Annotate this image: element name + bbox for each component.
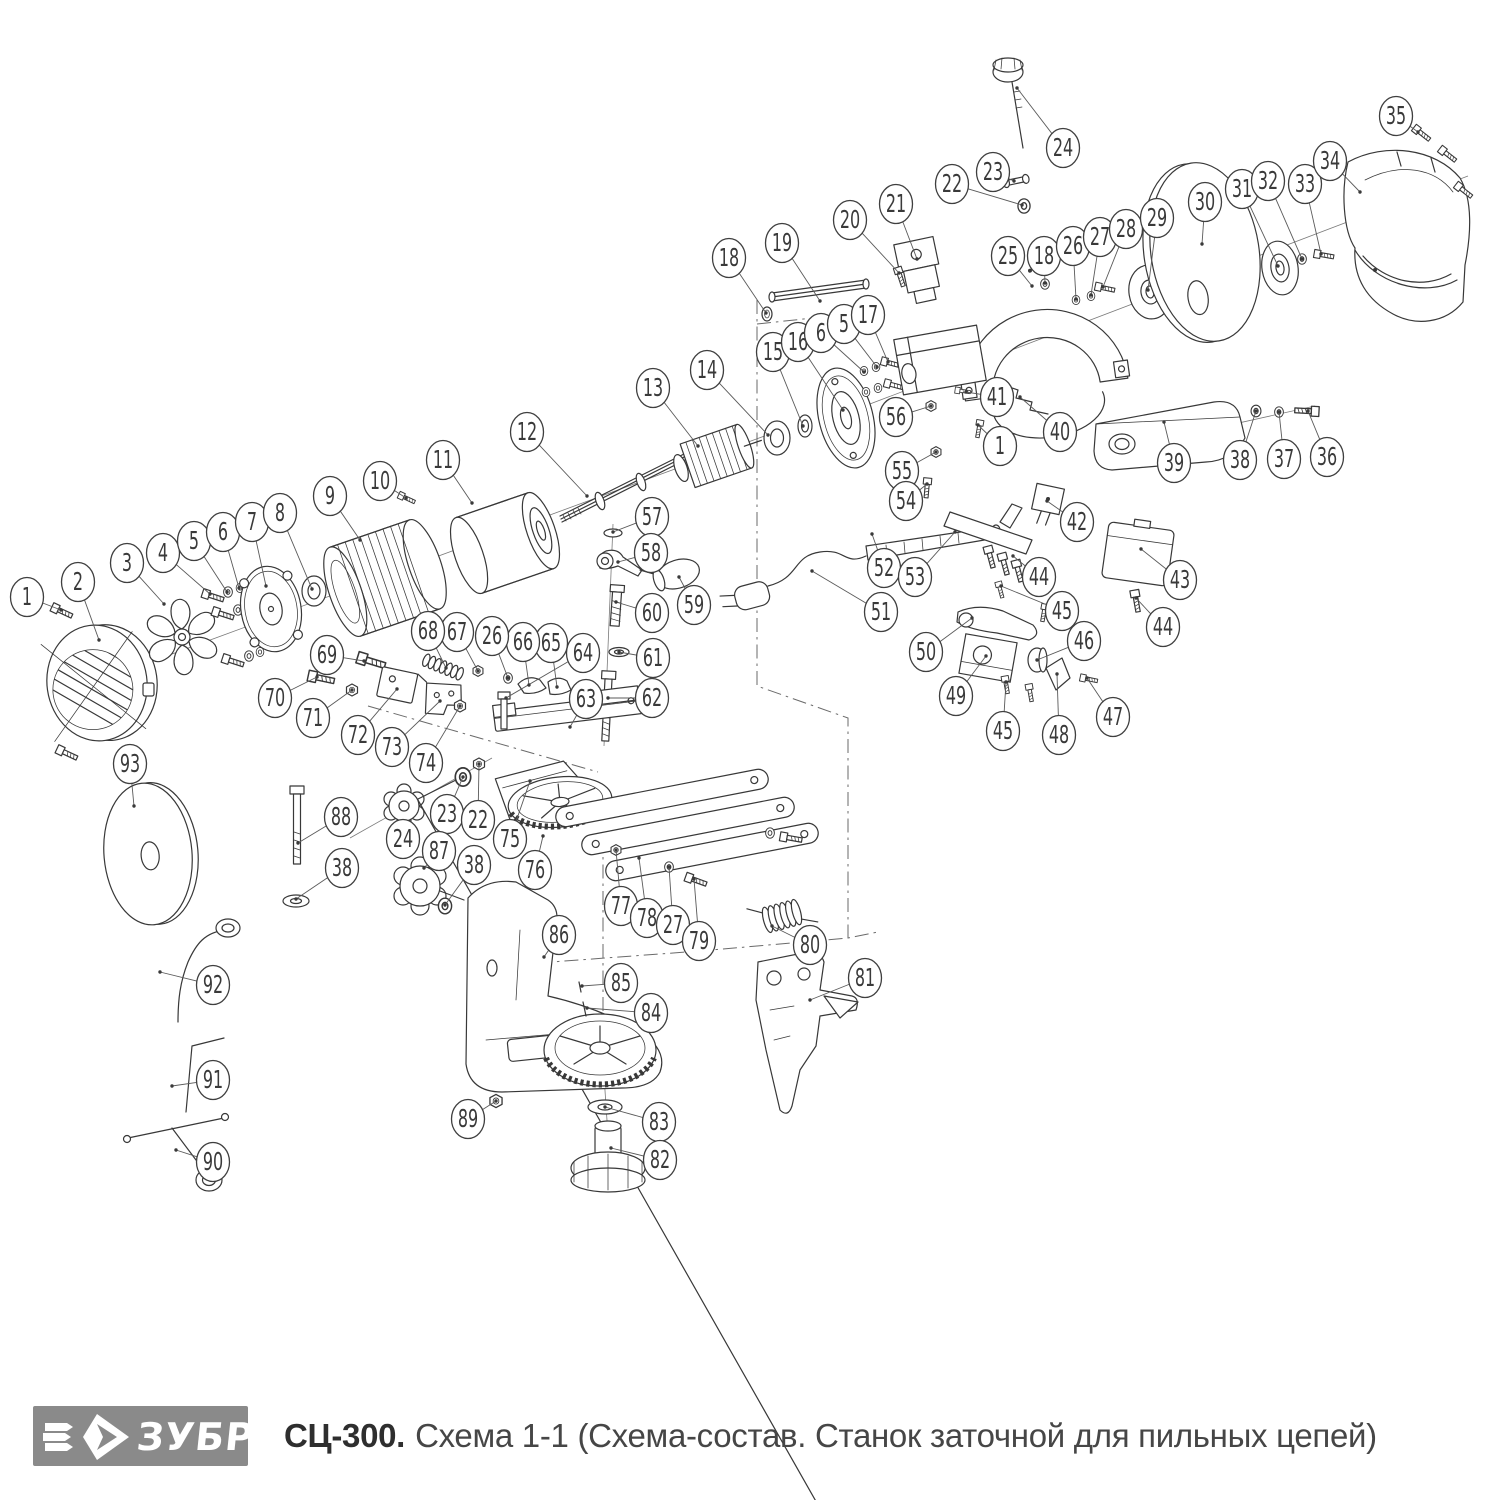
balloon-19: 19 (766, 224, 822, 303)
svg-text:69: 69 (317, 640, 337, 669)
svg-text:44: 44 (1153, 612, 1173, 641)
svg-text:19: 19 (772, 228, 792, 257)
svg-text:65: 65 (541, 628, 561, 657)
svg-text:50: 50 (916, 637, 936, 666)
svg-text:93: 93 (120, 749, 140, 778)
balloon-1: 1 (976, 423, 1016, 465)
svg-text:26: 26 (482, 621, 502, 650)
balloon-9: 9 (314, 477, 362, 542)
part-motor-flange (807, 362, 884, 474)
part-fan (144, 599, 220, 674)
svg-text:56: 56 (886, 402, 906, 431)
part-end-shield (234, 561, 308, 656)
balloon-69: 69 (311, 636, 366, 675)
balloon-87: 87 (422, 832, 455, 871)
svg-text:24: 24 (1053, 133, 1073, 162)
balloon-25: 25 (992, 237, 1034, 288)
part-bearing-front (302, 576, 326, 606)
balloon-92: 92 (158, 966, 229, 1005)
svg-text:67: 67 (447, 617, 467, 646)
part-spring-68 (421, 653, 465, 681)
svg-text:76: 76 (525, 855, 545, 884)
part-fan-cover (39, 617, 165, 748)
schema-title: Схема 1-1 (Схема-состав. Станок заточной… (415, 1417, 1377, 1454)
balloon-38: 38 (294, 849, 358, 901)
balloon-61: 61 (617, 639, 669, 678)
balloon-23: 23 (977, 153, 1016, 192)
balloon-60: 60 (614, 594, 668, 633)
svg-text:87: 87 (429, 836, 449, 865)
svg-text:51: 51 (871, 597, 891, 626)
svg-text:83: 83 (649, 1107, 669, 1136)
svg-text:6: 6 (218, 517, 228, 546)
part-stop-bracket-73 (421, 679, 464, 719)
svg-text:60: 60 (642, 598, 662, 627)
balloon-17: 17 (852, 296, 890, 364)
balloon-90: 90 (174, 1143, 229, 1182)
part-clip-65 (548, 678, 571, 694)
svg-text:18: 18 (1034, 241, 1054, 270)
part-power-cord (719, 551, 866, 615)
svg-text:29: 29 (1147, 203, 1167, 232)
svg-text:75: 75 (500, 824, 520, 853)
svg-text:10: 10 (370, 466, 390, 495)
exploded-diagram: 1234567891011121314151665171819202122232… (0, 0, 1500, 1500)
balloon-14: 14 (691, 351, 770, 437)
svg-text:26: 26 (1063, 231, 1083, 260)
svg-text:6: 6 (816, 318, 826, 347)
svg-text:39: 39 (1164, 448, 1184, 477)
svg-text:12: 12 (517, 417, 537, 446)
svg-text:68: 68 (418, 616, 438, 645)
svg-text:38: 38 (464, 850, 484, 879)
svg-text:86: 86 (549, 920, 569, 949)
svg-text:64: 64 (573, 638, 593, 667)
svg-text:23: 23 (983, 157, 1003, 186)
svg-text:80: 80 (800, 930, 820, 959)
svg-text:73: 73 (382, 732, 402, 761)
part-clip-66 (518, 678, 546, 694)
balloon-59: 59 (677, 575, 710, 624)
svg-text:27: 27 (1090, 222, 1110, 251)
svg-text:8: 8 (275, 498, 285, 527)
part-bracket-49 (959, 634, 1017, 682)
svg-text:5: 5 (839, 309, 849, 338)
part-washer-38-left (283, 895, 309, 907)
svg-text:2: 2 (73, 567, 83, 596)
balloon-10: 10 (364, 462, 408, 501)
svg-text:66: 66 (513, 627, 533, 656)
balloon-86: 86 (542, 916, 575, 959)
svg-text:20: 20 (840, 205, 860, 234)
svg-text:74: 74 (416, 748, 436, 777)
svg-text:45: 45 (1052, 596, 1072, 625)
svg-text:28: 28 (1116, 214, 1136, 243)
svg-text:38: 38 (332, 853, 352, 882)
svg-text:81: 81 (855, 963, 875, 992)
footer: ЗУБР СЦ-300.Схема 1-1 (Схема-состав. Ста… (0, 1400, 1500, 1472)
balloon-52: 52 (868, 532, 901, 587)
svg-text:49: 49 (946, 681, 966, 710)
part-spare-disc (98, 779, 204, 929)
page: 1234567891011121314151665171819202122232… (0, 0, 1500, 1500)
svg-text:52: 52 (874, 553, 894, 582)
svg-text:78: 78 (637, 903, 657, 932)
balloon-44: 44 (1134, 596, 1179, 646)
svg-text:1: 1 (995, 431, 1005, 460)
svg-text:55: 55 (892, 456, 912, 485)
svg-text:13: 13 (643, 373, 663, 402)
svg-text:35: 35 (1386, 101, 1406, 130)
part-latch-81 (756, 952, 858, 1113)
svg-text:14: 14 (697, 355, 717, 384)
svg-text:21: 21 (886, 189, 906, 218)
svg-text:45: 45 (993, 716, 1013, 745)
balloon-47: 47 (1085, 676, 1129, 736)
svg-text:22: 22 (468, 805, 488, 834)
svg-text:15: 15 (763, 337, 783, 366)
part-rotor (443, 488, 567, 598)
part-pin-19 (769, 279, 869, 302)
brand-logo: ЗУБР (33, 1406, 248, 1466)
balloon-12: 12 (511, 413, 589, 498)
svg-text:63: 63 (576, 684, 596, 713)
part-stop-plate-72 (376, 667, 427, 706)
svg-text:9: 9 (325, 481, 335, 510)
svg-text:27: 27 (663, 910, 683, 939)
svg-text:41: 41 (987, 382, 1007, 411)
svg-text:59: 59 (684, 590, 704, 619)
svg-text:36: 36 (1317, 442, 1337, 471)
part-bearing-rear (764, 421, 790, 455)
svg-text:11: 11 (433, 445, 453, 474)
svg-text:30: 30 (1195, 187, 1215, 216)
balloon-37: 37 (1268, 410, 1301, 478)
balloon-88: 88 (296, 798, 357, 845)
balloon-54: 54 (890, 482, 929, 521)
brand-text: ЗУБР (135, 1415, 257, 1459)
part-lock-knob-82 (571, 1121, 645, 1192)
model-label: СЦ-300. (284, 1417, 405, 1454)
svg-text:90: 90 (203, 1147, 223, 1176)
svg-text:84: 84 (641, 998, 661, 1027)
svg-text:79: 79 (689, 926, 709, 955)
svg-text:4: 4 (158, 538, 168, 567)
svg-text:22: 22 (942, 169, 962, 198)
part-armature (668, 419, 769, 492)
svg-text:23: 23 (437, 799, 457, 828)
svg-text:24: 24 (393, 824, 413, 853)
svg-text:37: 37 (1274, 444, 1294, 473)
balloon-91: 91 (170, 1061, 229, 1100)
page-title: СЦ-300.Схема 1-1 (Схема-состав. Станок з… (284, 1417, 1377, 1455)
svg-text:25: 25 (998, 241, 1018, 270)
svg-text:3: 3 (122, 548, 132, 577)
svg-text:33: 33 (1295, 169, 1315, 198)
svg-text:47: 47 (1103, 702, 1123, 731)
svg-text:48: 48 (1049, 720, 1069, 749)
svg-text:61: 61 (643, 643, 663, 672)
svg-text:62: 62 (642, 683, 662, 712)
balloon-85: 85 (580, 964, 637, 1003)
svg-text:72: 72 (348, 720, 368, 749)
balloon-18: 18 (713, 239, 768, 315)
svg-text:32: 32 (1258, 166, 1278, 195)
svg-text:88: 88 (331, 802, 351, 831)
svg-text:34: 34 (1320, 146, 1340, 175)
svg-text:77: 77 (611, 891, 631, 920)
svg-text:31: 31 (1232, 174, 1252, 203)
svg-text:46: 46 (1074, 626, 1094, 655)
svg-text:91: 91 (203, 1065, 223, 1094)
svg-text:38: 38 (1230, 445, 1250, 474)
svg-text:7: 7 (247, 507, 257, 536)
balloon-33: 33 (1289, 165, 1323, 256)
svg-text:89: 89 (458, 1104, 478, 1133)
balloon-11: 11 (427, 441, 474, 505)
balloon-74: 74 (410, 704, 462, 782)
balloon-45: 45 (987, 680, 1020, 750)
svg-text:53: 53 (905, 562, 925, 591)
balloon-18: 18 (1028, 237, 1061, 285)
svg-text:42: 42 (1067, 507, 1087, 536)
balloon-36: 36 (1306, 409, 1343, 476)
svg-text:18: 18 (719, 243, 739, 272)
balloon-13: 13 (637, 369, 700, 448)
svg-text:57: 57 (642, 502, 662, 531)
part-outer-flange (1258, 239, 1302, 298)
svg-text:58: 58 (641, 538, 661, 567)
svg-text:1: 1 (22, 582, 32, 611)
part-depth-stop-rod (993, 58, 1023, 148)
svg-text:54: 54 (896, 486, 916, 515)
part-terminal-block (1029, 483, 1064, 527)
svg-text:71: 71 (303, 703, 323, 732)
balloon-24: 24 (1015, 86, 1079, 167)
svg-text:70: 70 (265, 683, 285, 712)
svg-text:5: 5 (189, 526, 199, 555)
balloon-40: 40 (1018, 395, 1076, 451)
balloon-63: 63 (568, 680, 602, 729)
svg-text:17: 17 (858, 300, 878, 329)
svg-text:40: 40 (1050, 417, 1070, 446)
svg-text:43: 43 (1170, 565, 1190, 594)
balloon-24: 24 (387, 820, 420, 859)
part-bolt-88 (290, 786, 304, 864)
balloon-56: 56 (880, 398, 933, 437)
part-wheel-guard (1344, 150, 1470, 321)
svg-text:82: 82 (650, 1145, 670, 1174)
parts-art (39, 58, 1474, 1500)
svg-text:92: 92 (203, 970, 223, 999)
svg-text:85: 85 (611, 968, 631, 997)
svg-text:44: 44 (1029, 562, 1049, 591)
